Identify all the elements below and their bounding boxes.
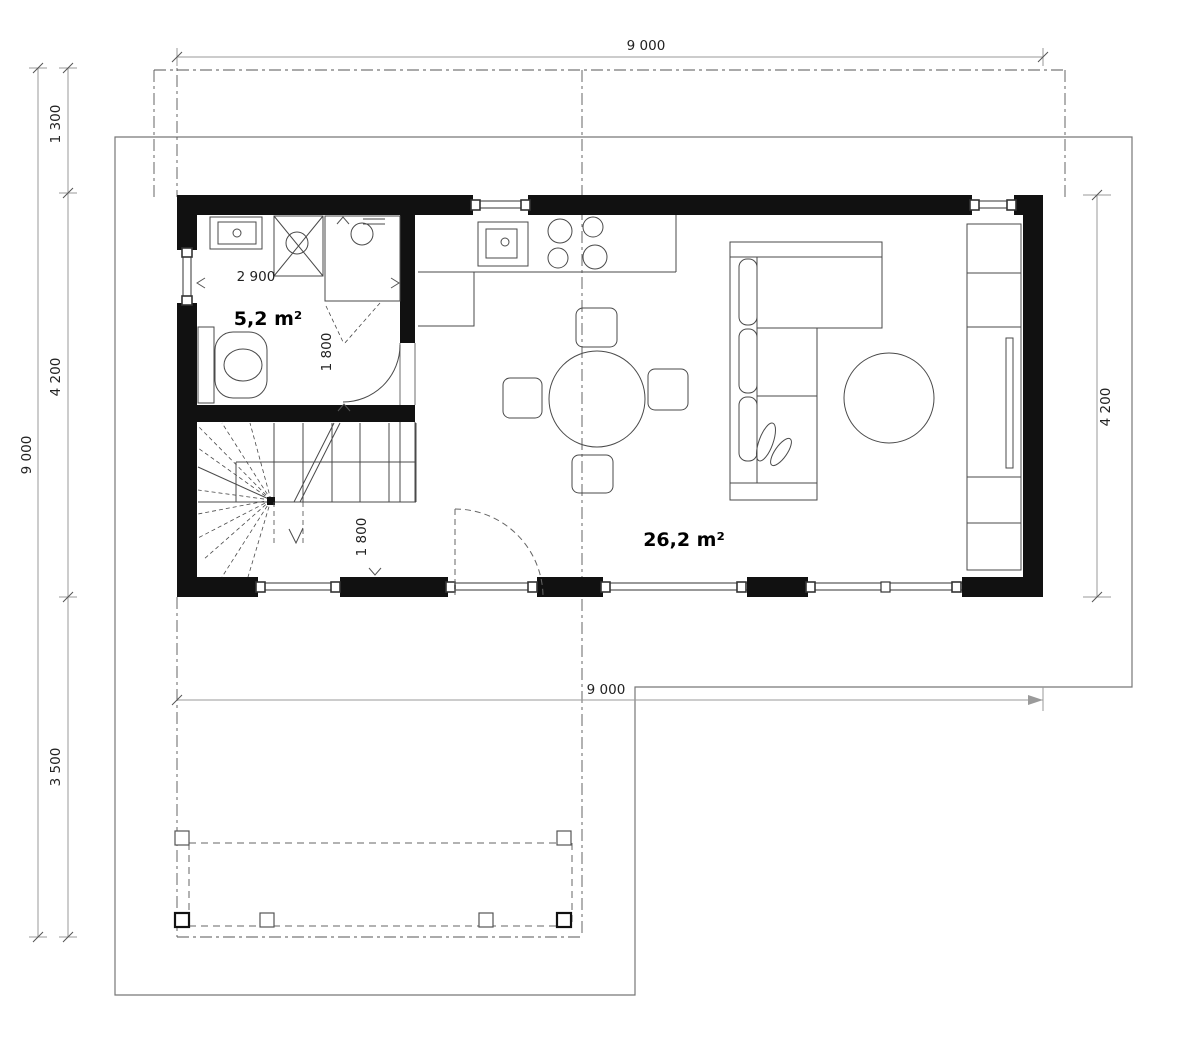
dim-bathroom-clearance: 1 800 xyxy=(319,333,335,372)
bathroom-sink xyxy=(210,217,262,249)
dim-middle-width: 9 000 xyxy=(587,682,626,698)
dim-left-terrace: 3 500 xyxy=(48,748,64,787)
dim-roof-overhang: 1 300 xyxy=(48,105,64,144)
stair-hidden-lines xyxy=(274,502,303,547)
staircase xyxy=(198,422,416,577)
dim-hall-clearance: 1 800 xyxy=(354,518,370,557)
terrace-post xyxy=(175,831,189,845)
window-kitchen xyxy=(471,194,530,216)
terrace-post xyxy=(557,913,571,927)
window-top-right xyxy=(970,194,1016,216)
cooktop xyxy=(548,217,607,269)
toilet xyxy=(198,327,267,403)
floor-plan-canvas: 9 000 9 000 1 300 4 200 3 500 4 200 9 00… xyxy=(0,0,1177,1043)
dim-left-total: 9 000 xyxy=(19,436,35,475)
terrace xyxy=(175,831,572,927)
kitchen-sink xyxy=(478,222,528,266)
shower xyxy=(274,216,323,276)
wall-top xyxy=(177,195,1043,215)
wardrobe xyxy=(967,224,1021,570)
wall-bathroom-bottom xyxy=(177,405,415,422)
windows xyxy=(176,194,1016,598)
sofa-pillow xyxy=(767,435,795,468)
dim-left-house: 4 200 xyxy=(48,358,64,397)
bathroom-area-label: 5,2 m² xyxy=(234,308,302,330)
window-living-1 xyxy=(601,576,747,598)
kitchen-tall-cabinet xyxy=(418,272,474,326)
washing-machine xyxy=(325,216,400,301)
entrance-door xyxy=(446,576,537,598)
room-labels: 5,2 m² 26,2 m² xyxy=(234,308,725,551)
window-bathroom xyxy=(176,248,198,305)
dining-set xyxy=(503,308,688,493)
stair-risers xyxy=(236,423,416,502)
bathroom xyxy=(198,216,415,405)
kitchen-counter xyxy=(418,215,676,272)
stair-direction-arrow xyxy=(289,528,303,543)
window-living-2 xyxy=(806,576,962,598)
coffee-table xyxy=(844,353,934,443)
dim-top-width: 9 000 xyxy=(627,38,666,54)
floor-plan-drawing: 9 000 9 000 1 300 4 200 3 500 4 200 9 00… xyxy=(0,0,1177,1043)
dining-table xyxy=(549,351,645,447)
sofa xyxy=(730,242,882,500)
terrace-post xyxy=(479,913,493,927)
window-stair xyxy=(256,576,340,598)
winder-dashed-treads xyxy=(198,423,271,577)
dim-bathroom-width: 2 900 xyxy=(237,269,276,285)
dim-right-house: 4 200 xyxy=(1098,388,1114,427)
dining-chair-bottom xyxy=(572,455,613,493)
living-area-label: 26,2 m² xyxy=(643,529,725,551)
terrace-post xyxy=(260,913,274,927)
living-room xyxy=(730,224,1021,570)
terrace-post xyxy=(175,913,189,927)
kitchen xyxy=(418,215,676,326)
wall-bathroom-right xyxy=(400,215,415,343)
wall-right xyxy=(1023,195,1043,597)
site-boundary xyxy=(115,137,1132,995)
roof-overhang-lines xyxy=(154,52,1065,937)
terrace-beams xyxy=(189,843,572,926)
dining-chair-right xyxy=(648,369,688,410)
terrace-post xyxy=(557,831,571,845)
dining-chair-left xyxy=(503,378,542,418)
walls xyxy=(177,195,1043,597)
